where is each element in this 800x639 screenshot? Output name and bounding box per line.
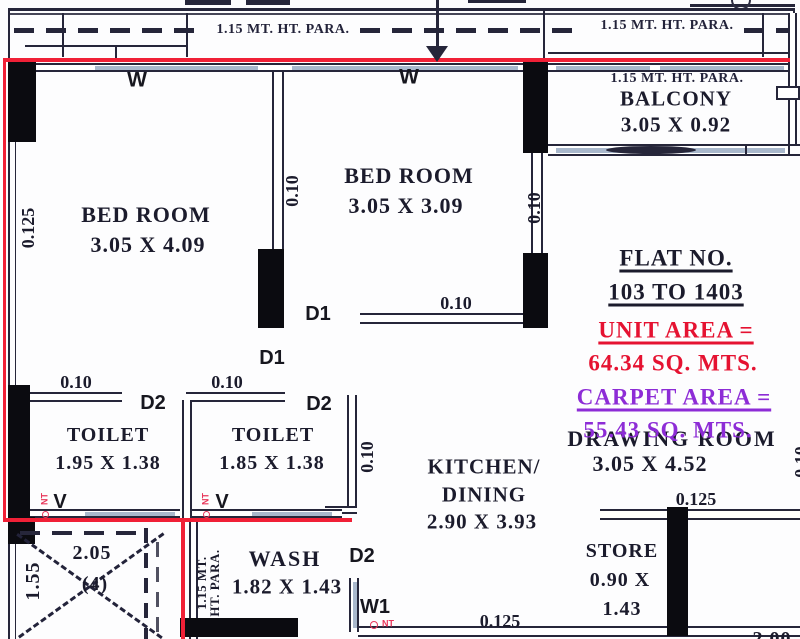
balcony-parapet-label: 1.15 MT. HT. PARA.	[610, 72, 743, 86]
wall-column	[258, 249, 284, 328]
vent-symbol	[42, 511, 49, 518]
window-tag-w-bed2: W	[399, 67, 419, 88]
balcony-band-inner-line	[548, 52, 788, 54]
wash-name: WASH	[249, 548, 322, 570]
parapet-dashed-line	[360, 28, 582, 33]
bedroom-left-dims: 3.05 X 4.09	[91, 234, 206, 256]
band-inner-step-tick	[115, 45, 117, 58]
bedroom-mid-name: BED ROOM	[344, 165, 474, 187]
wash-parapet-note: 1.15 MT. HT. PARA.	[195, 549, 221, 616]
toilet-left-vent-glass	[85, 512, 175, 516]
balcony-name: BALCONY	[620, 89, 732, 110]
bedroom-divider-wall	[272, 72, 284, 250]
band-inner-step	[25, 45, 186, 47]
top-partial-mark	[185, 0, 231, 5]
toilet-mid-dims: 1.85 X 1.38	[219, 453, 324, 473]
wall-dim-010-toilet2-east: 0.10	[358, 441, 376, 473]
flat-no-value: 103 TO 1403	[608, 281, 743, 304]
shaft-top-dashed-line	[20, 531, 148, 535]
balcony-parapet-glass	[660, 66, 784, 71]
south-wall	[358, 626, 800, 637]
kitchen-dims: 2.90 X 3.93	[427, 512, 537, 533]
door-tag-d1: D1	[259, 348, 285, 368]
wash-south-wall-black	[180, 618, 298, 637]
wall-dim-0125-store: 0.125	[676, 490, 717, 508]
store-dims-line2: 1.43	[603, 599, 642, 619]
kitchen-name-line1: KITCHEN/	[427, 457, 540, 478]
toilet-left-north-wall	[30, 392, 122, 402]
drawing-room-dims: 3.05 X 4.52	[593, 453, 708, 475]
shaft-width-dim: 2.05	[73, 543, 112, 563]
toilet-left-dims: 1.95 X 1.38	[55, 453, 160, 473]
door-tag-d1: D1	[305, 304, 331, 324]
toilet-mid-north-wall	[186, 392, 285, 402]
red-outline-north	[3, 58, 790, 62]
wall-dim-010-east-partial: 0.10	[792, 446, 800, 478]
wall-dim-010-toilet1: 0.10	[60, 373, 92, 391]
window-tag-w1: W1	[360, 597, 390, 617]
shaft-right-dashed-line2	[156, 542, 159, 639]
band-divider	[762, 13, 764, 57]
wall-dim-010-toilet2: 0.10	[211, 373, 243, 391]
wall-column	[8, 60, 36, 142]
door-tag-d2: D2	[140, 393, 166, 413]
unit-area-label: UNIT AREA =	[598, 319, 753, 342]
entrance-arrow-shaft	[436, 0, 439, 48]
store-north-wall	[600, 509, 800, 520]
vent-tag-nt: NT	[41, 493, 50, 505]
bedroom-left-name: BED ROOM	[81, 204, 211, 226]
wall-dim-010-bed1: 0.10	[283, 175, 301, 207]
store-name: STORE	[586, 541, 658, 561]
wall-dim-0125-kitchen: 0.125	[480, 612, 521, 630]
entrance-arrow-head	[426, 46, 448, 62]
wall-column	[523, 60, 548, 153]
vent-symbol	[370, 621, 378, 629]
parapet-label-left: 1.15 MT. HT. PARA.	[216, 23, 349, 37]
wash-dims: 1.82 X 1.43	[232, 577, 342, 598]
vent-tag-nt: NT	[202, 493, 211, 505]
kitchen-name-line2: DINING	[442, 485, 526, 506]
parapet-dashed-line	[744, 28, 794, 33]
balcony-window-sash	[606, 146, 696, 154]
vent-tag-v: V	[215, 492, 228, 512]
wash-parapet-line2: HT. PARA.	[208, 549, 221, 616]
store-dims-line1: 0.90 X	[590, 570, 650, 590]
parapet-label-right: 1.15 MT. HT. PARA.	[600, 19, 733, 33]
top-partial-mark	[246, 0, 290, 5]
balcony-east-step	[776, 86, 800, 100]
parapet-dashed-line	[14, 28, 206, 33]
balcony-dims: 3.05 X 0.92	[621, 115, 731, 136]
bedroom-mid-south-wall	[360, 313, 523, 324]
store-west-wall-black	[667, 507, 688, 636]
vent-tag-v: V	[53, 492, 66, 512]
carpet-area-value: 55.43 SQ. MTS.	[583, 419, 752, 442]
wall-dim-0125-west: 0.125	[19, 208, 37, 249]
band-divider	[62, 13, 64, 57]
shaft-height-dim: 1.55	[23, 562, 43, 601]
band-divider	[8, 8, 10, 58]
wall-dim-010-d1wall: 0.10	[440, 294, 472, 312]
band-divider	[186, 13, 188, 57]
red-outline-wash-west	[181, 520, 185, 639]
wash-window-w1-glass	[353, 582, 357, 628]
toilet-mid-vent-glass	[252, 512, 332, 516]
vent-tag-nt: NT	[382, 620, 394, 629]
unit-area-value: 64.34 SQ. MTS.	[588, 352, 757, 375]
toilet-left-name: TOILET	[67, 425, 149, 445]
balcony-parapet-glass	[556, 66, 650, 71]
red-outline-south	[3, 518, 352, 522]
balcony-east-wall	[788, 13, 797, 144]
parapet-band-top-line	[8, 8, 795, 11]
window-tag-w-bed1: W	[127, 70, 147, 91]
bedroom-mid-dims: 3.05 X 3.09	[349, 195, 464, 217]
wall-column	[523, 253, 548, 328]
vent-symbol	[203, 511, 210, 518]
flat-no-label: FLAT NO.	[619, 247, 732, 270]
toilet-mid-east-wall	[347, 395, 357, 507]
balcony-window-tick	[788, 144, 790, 156]
top-partial-mark	[468, 0, 526, 3]
red-outline-west	[3, 60, 6, 521]
west-wall-outer	[8, 63, 10, 639]
toilet-divider-wall	[182, 400, 192, 521]
partial-dim-bottom-right: 2.00	[753, 629, 792, 639]
toilet-mid-name: TOILET	[232, 425, 314, 445]
toilet-west-wall-black	[8, 385, 30, 521]
balcony-window-tick	[745, 145, 747, 155]
floor-plan: 1.15 MT. HT. PARA. 1.15 MT. HT. PARA.	[0, 0, 800, 639]
shaft-count: (4)	[82, 574, 108, 594]
door-tag-d2: D2	[349, 546, 375, 566]
wall-dim-010-bed2: 0.10	[525, 192, 543, 224]
bedroom-left-window	[95, 66, 258, 71]
band-divider	[543, 8, 545, 58]
door-tag-d2: D2	[306, 394, 332, 414]
parapet-band-inner-line	[8, 13, 795, 15]
carpet-area-label: CARPET AREA =	[577, 386, 771, 409]
